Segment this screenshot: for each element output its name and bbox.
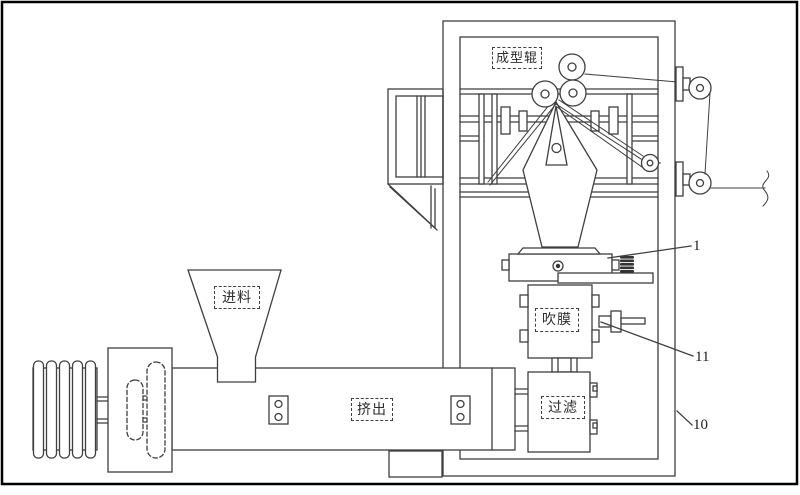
ref-numeral-11: 11 <box>695 350 709 365</box>
air-valve <box>599 311 645 332</box>
support-foot <box>389 451 442 477</box>
feeding-label-text: 进料 <box>222 291 252 305</box>
ladder-frame <box>388 89 443 230</box>
feeding-label: 进料 <box>214 286 260 309</box>
film-blowing-label-text: 吹膜 <box>542 313 572 327</box>
outer-guide-rollers <box>676 67 769 206</box>
extrusion-label: 挤出 <box>351 398 393 421</box>
die-assembly <box>502 248 653 283</box>
spring <box>620 256 634 273</box>
film-web-top <box>585 74 689 83</box>
machine-line-art <box>0 0 800 495</box>
filtering-label-text: 过滤 <box>548 401 578 415</box>
forming-roller-label: 成型辊 <box>492 47 542 69</box>
inner-guide-roller <box>642 155 661 172</box>
ref-numeral-1: 1 <box>693 239 701 254</box>
extrusion-label-text: 挤出 <box>357 403 387 417</box>
film-blowing-label: 吹膜 <box>535 308 579 332</box>
filtering-label: 过滤 <box>541 396 585 419</box>
ref-numeral-10: 10 <box>693 418 708 433</box>
forming-roller-label-text: 成型辊 <box>496 52 538 65</box>
film-break-squiggle <box>763 171 769 206</box>
patent-figure: 成型辊 进料 挤出 吹膜 过滤 1 11 10 <box>0 0 800 495</box>
drive-motor <box>33 361 108 458</box>
gearbox <box>108 348 172 472</box>
